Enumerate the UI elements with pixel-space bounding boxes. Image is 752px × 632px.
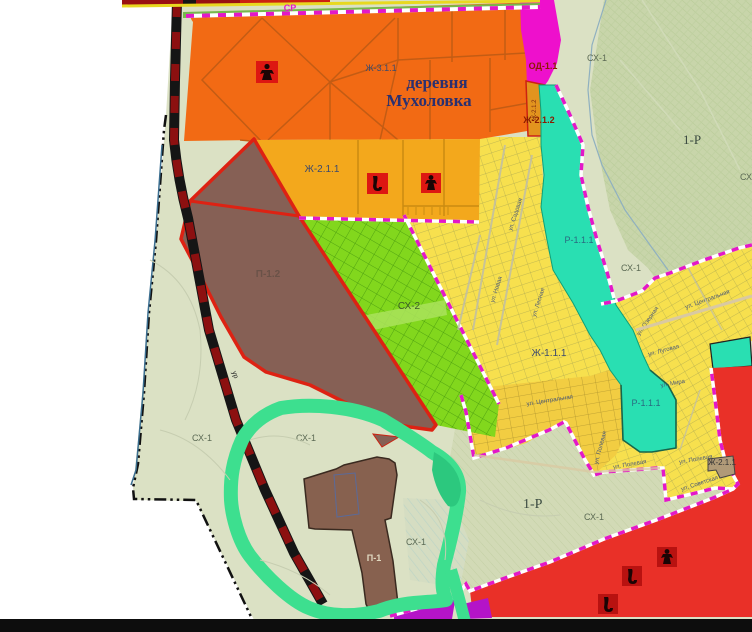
svg-text:1-Р: 1-Р bbox=[683, 132, 701, 147]
svg-text:СХ-1: СХ-1 bbox=[296, 433, 316, 443]
svg-text:ОД-1.1: ОД-1.1 bbox=[529, 61, 558, 71]
svg-text:Ж-2.1.1: Ж-2.1.1 bbox=[305, 164, 340, 175]
svg-text:СХ-1: СХ-1 bbox=[406, 537, 426, 547]
svg-text:Ж-3.1.1: Ж-3.1.1 bbox=[365, 63, 396, 73]
svg-text:СХ: СХ bbox=[740, 172, 752, 182]
svg-text:1-Р: 1-Р bbox=[523, 497, 543, 512]
svg-text:П-1.2: П-1.2 bbox=[256, 269, 281, 280]
svg-text:СХ-1: СХ-1 bbox=[192, 433, 212, 443]
svg-text:СХ-1: СХ-1 bbox=[621, 263, 641, 273]
svg-text:СХ-2: СХ-2 bbox=[398, 301, 421, 312]
svg-text:Мухоловка: Мухоловка bbox=[386, 91, 472, 110]
svg-text:СХ-1: СХ-1 bbox=[587, 53, 607, 63]
svg-text:СР: СР bbox=[284, 3, 297, 13]
svg-text:деревня: деревня bbox=[406, 73, 467, 92]
svg-text:Ж-2.1.2: Ж-2.1.2 bbox=[522, 115, 554, 125]
svg-text:Ж-1.1.1: Ж-1.1.1 bbox=[532, 348, 567, 359]
svg-text:Ж-2.1.2: Ж-2.1.2 bbox=[532, 99, 538, 121]
svg-text:П-1: П-1 bbox=[367, 553, 381, 563]
svg-text:Р-1.1.1: Р-1.1.1 bbox=[631, 398, 660, 408]
svg-text:Р-1.1.1: Р-1.1.1 bbox=[564, 235, 593, 245]
svg-text:СХ-1: СХ-1 bbox=[584, 512, 604, 522]
